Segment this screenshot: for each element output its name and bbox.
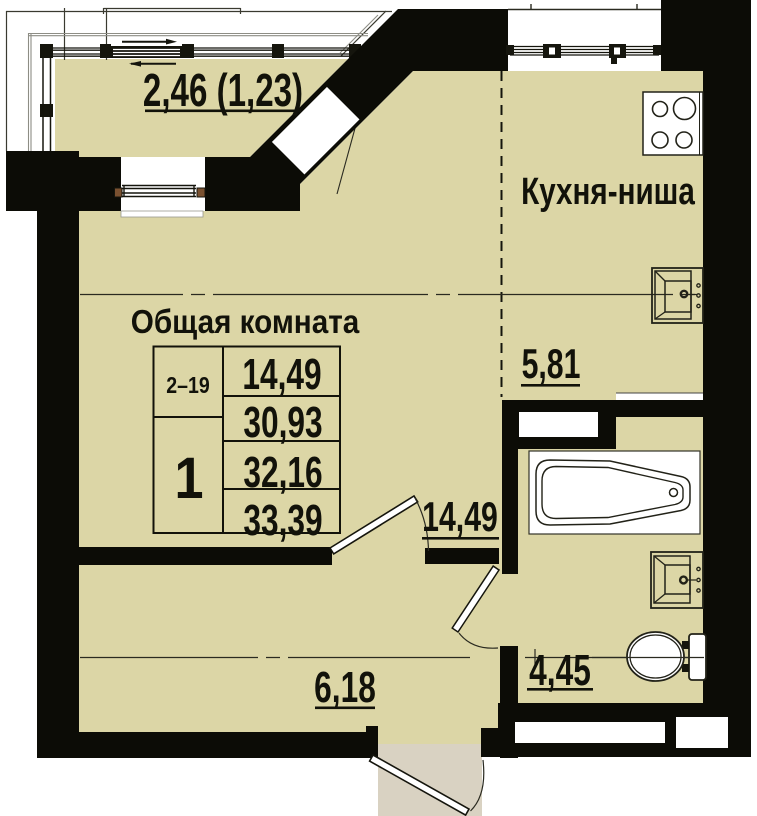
svg-text:14,49: 14,49 [422, 493, 498, 540]
svg-text:2–19: 2–19 [166, 373, 210, 399]
svg-text:33,39: 33,39 [243, 496, 322, 545]
svg-text:4,45: 4,45 [529, 646, 591, 695]
svg-text:Общая комната: Общая комната [131, 304, 360, 341]
svg-text:5,81: 5,81 [522, 340, 581, 387]
svg-text:2,46 (1,23): 2,46 (1,23) [143, 66, 303, 116]
svg-text:Кухня-ниша: Кухня-ниша [521, 171, 696, 213]
svg-text:1: 1 [174, 445, 203, 510]
svg-text:32,16: 32,16 [243, 448, 322, 497]
svg-text:30,93: 30,93 [243, 398, 322, 447]
svg-text:14,49: 14,49 [242, 350, 321, 399]
svg-text:6,18: 6,18 [314, 663, 376, 712]
